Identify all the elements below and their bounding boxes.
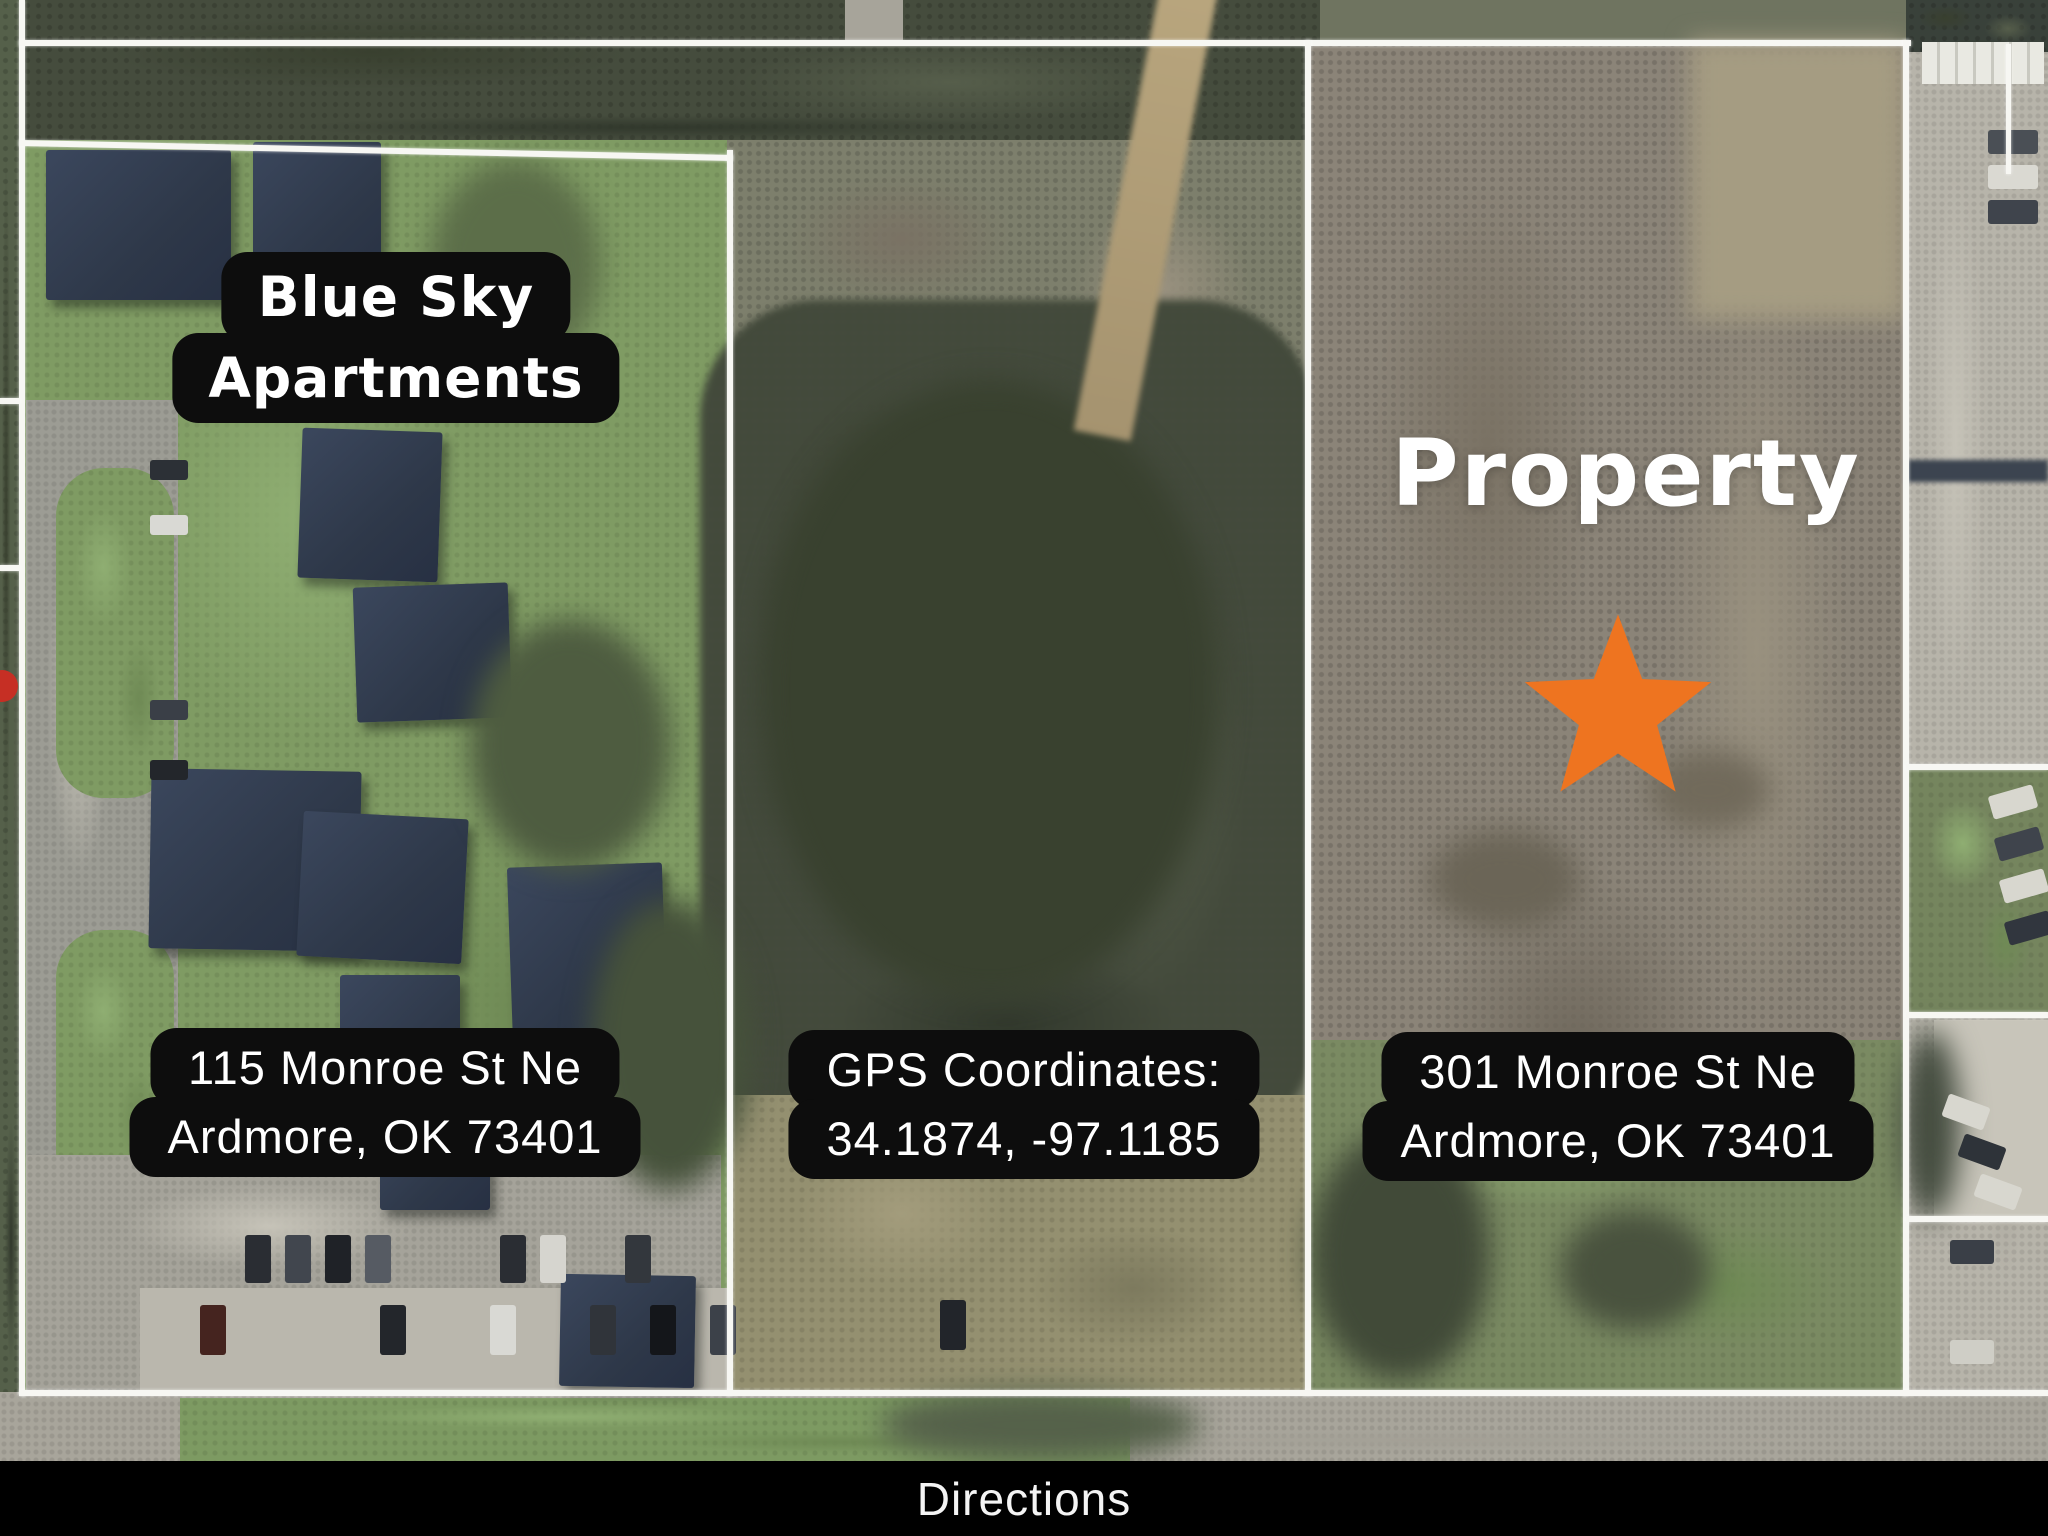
boundary-northeast-stub bbox=[2006, 44, 2011, 174]
address-left-line2: Ardmore, OK 73401 bbox=[130, 1097, 641, 1176]
boundary-middle-vertical bbox=[1305, 40, 1311, 1396]
car bbox=[625, 1235, 651, 1283]
car bbox=[540, 1235, 566, 1283]
apartment-building bbox=[296, 811, 468, 964]
address-right-line2: Ardmore, OK 73401 bbox=[1363, 1101, 1874, 1180]
car bbox=[325, 1235, 351, 1283]
satellite-map: Blue Sky Apartments Property 115 Monroe … bbox=[0, 0, 2048, 1461]
address-right-label: 301 Monroe St Ne Ardmore, OK 73401 bbox=[1363, 1032, 1874, 1181]
boundary-east-stub-2 bbox=[1906, 1012, 2048, 1018]
address-right-line1: 301 Monroe St Ne bbox=[1381, 1032, 1854, 1111]
property-title: Property bbox=[1391, 420, 1861, 527]
car bbox=[200, 1305, 226, 1355]
industrial-trees-mid bbox=[1900, 1030, 1960, 1220]
middle-woods-core bbox=[760, 380, 1220, 1000]
car bbox=[940, 1300, 966, 1350]
truck-trailer bbox=[1950, 1340, 1994, 1364]
truck-trailer bbox=[1988, 130, 2038, 154]
address-left-label: 115 Monroe St Ne Ardmore, OK 73401 bbox=[130, 1028, 641, 1177]
parcel-trees-2 bbox=[470, 620, 670, 870]
car bbox=[490, 1305, 516, 1355]
car bbox=[150, 700, 188, 720]
boundary-apartment-east bbox=[727, 150, 733, 1396]
apartment-building bbox=[297, 428, 442, 583]
gps-label-line2: 34.1874, -97.1185 bbox=[788, 1099, 1259, 1178]
boundary-west-stub-1 bbox=[0, 398, 20, 404]
star-icon bbox=[1520, 612, 1716, 798]
property-flyer: Blue Sky Apartments Property 115 Monroe … bbox=[0, 0, 2048, 1536]
boundary-east-vertical bbox=[1903, 40, 1909, 1396]
apartments-label-line2: Apartments bbox=[172, 333, 619, 424]
boundary-top-horizontal bbox=[19, 40, 1911, 46]
car bbox=[650, 1305, 676, 1355]
boundary-west-vertical bbox=[19, 0, 25, 1396]
car bbox=[245, 1235, 271, 1283]
truck-trailer bbox=[1950, 1240, 1994, 1264]
car bbox=[285, 1235, 311, 1283]
car bbox=[590, 1305, 616, 1355]
car bbox=[150, 760, 188, 780]
truck-trailer bbox=[1988, 200, 2038, 224]
directions-bar[interactable]: Directions bbox=[0, 1461, 2048, 1536]
property-trees-2 bbox=[1560, 1210, 1710, 1330]
boundary-west-stub-2 bbox=[0, 565, 20, 571]
property-tan-corner bbox=[1690, 40, 1906, 320]
woods-top-strip bbox=[0, 0, 1320, 150]
directions-label[interactable]: Directions bbox=[917, 1472, 1132, 1526]
car bbox=[150, 460, 188, 480]
apartments-label: Blue Sky Apartments bbox=[172, 252, 619, 423]
white-trailers-row bbox=[1922, 42, 2044, 84]
car bbox=[365, 1235, 391, 1283]
gps-label-line1: GPS Coordinates: bbox=[789, 1030, 1260, 1109]
car bbox=[380, 1305, 406, 1355]
boundary-bottom-horizontal bbox=[19, 1390, 2048, 1396]
industrial-dark-band bbox=[1906, 460, 2048, 482]
apartments-label-line1: Blue Sky bbox=[222, 252, 570, 343]
star-shape bbox=[1525, 614, 1711, 791]
car bbox=[500, 1235, 526, 1283]
property-brush-1 bbox=[1430, 830, 1580, 930]
bottom-trees bbox=[880, 1390, 1200, 1460]
gps-label: GPS Coordinates: 34.1874, -97.1185 bbox=[788, 1030, 1259, 1179]
boundary-east-stub-3 bbox=[1906, 1216, 2048, 1222]
car bbox=[150, 515, 188, 535]
address-left-line1: 115 Monroe St Ne bbox=[150, 1028, 620, 1107]
truck-trailer bbox=[1988, 165, 2038, 189]
boundary-east-stub-1 bbox=[1906, 764, 2048, 770]
